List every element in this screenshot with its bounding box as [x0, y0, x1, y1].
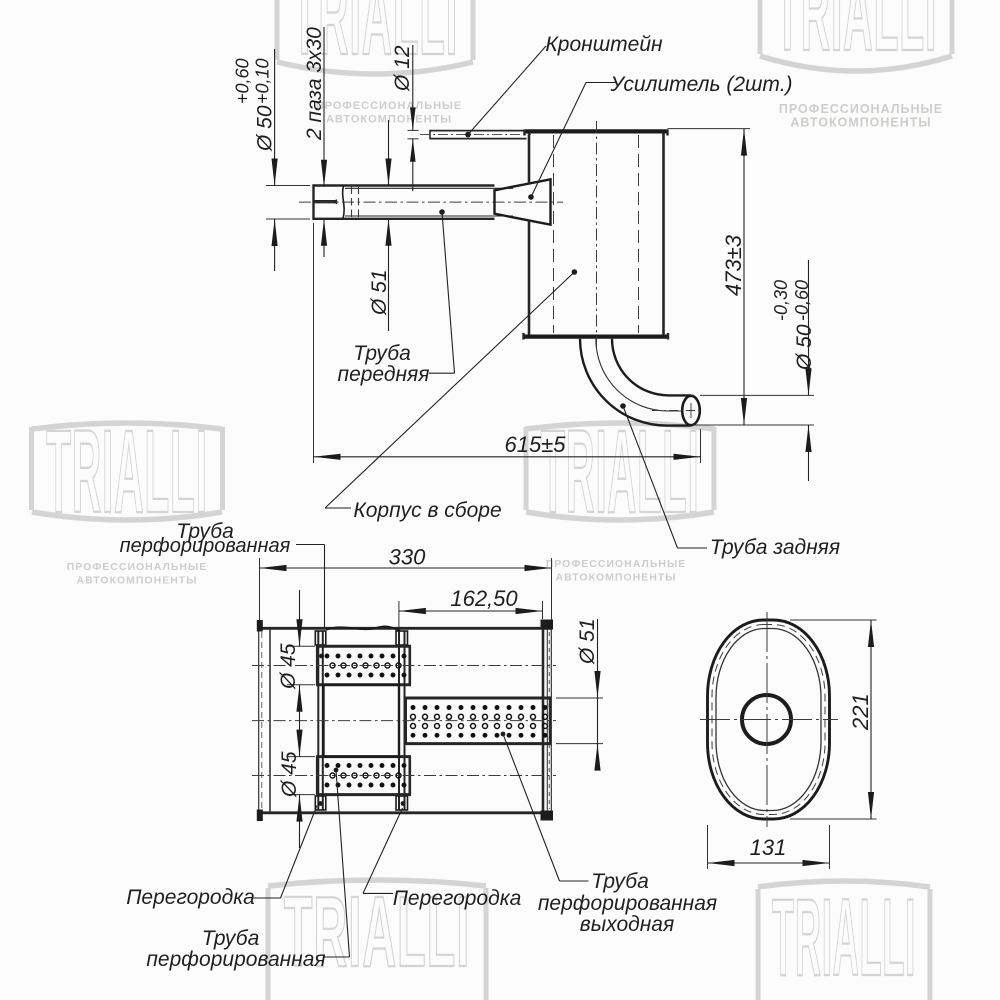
- svg-text:Труба задняя: Труба задняя: [710, 536, 840, 559]
- svg-text:ПРОФЕССИОНАЛЬНЫЕ: ПРОФЕССИОНАЛЬНЫЕ: [779, 102, 943, 116]
- svg-text:+0,60: +0,60: [233, 58, 253, 104]
- svg-text:передняя: передняя: [338, 363, 430, 386]
- svg-text:выходная: выходная: [580, 913, 674, 936]
- svg-text:Перегородка: Перегородка: [126, 886, 255, 909]
- svg-text:615±5: 615±5: [504, 432, 566, 457]
- svg-text:АВТОКОМПОНЕНТЫ: АВТОКОМПОНЕНТЫ: [790, 116, 931, 130]
- svg-text:Труба: Труба: [202, 927, 260, 950]
- svg-text:Ø 45: Ø 45: [278, 751, 301, 798]
- svg-text:162,50: 162,50: [450, 586, 518, 611]
- svg-text:Корпус в сборе: Корпус в сборе: [353, 499, 501, 522]
- svg-text:Ø 45: Ø 45: [277, 643, 300, 690]
- svg-text:Ø 50: Ø 50: [254, 105, 277, 152]
- svg-text:перфорированная: перфорированная: [120, 535, 291, 557]
- svg-text:Кронштейн: Кронштейн: [545, 33, 663, 56]
- svg-text:Труба: Труба: [591, 870, 649, 893]
- svg-text:Ø 51: Ø 51: [576, 618, 599, 665]
- svg-text:перфорированная: перфорированная: [538, 892, 717, 915]
- svg-text:+0,10: +0,10: [253, 58, 273, 104]
- svg-text:АВТОКОМПОНЕНТЫ: АВТОКОМПОНЕНТЫ: [556, 572, 677, 584]
- svg-text:ПРОФЕССИОНАЛЬНЫЕ: ПРОФЕССИОНАЛЬНЫЕ: [546, 558, 687, 570]
- svg-text:-0,60: -0,60: [792, 280, 812, 321]
- svg-text:перфорированная: перфорированная: [146, 948, 325, 971]
- svg-text:Ø 50: Ø 50: [793, 324, 816, 371]
- svg-text:Ø 51: Ø 51: [368, 269, 391, 316]
- svg-text:Ø 12: Ø 12: [391, 45, 414, 92]
- svg-text:ПРОФЕССИОНАЛЬНЫЕ: ПРОФЕССИОНАЛЬНЫЕ: [67, 561, 208, 573]
- svg-text:TRIALLI: TRIALLI: [772, 877, 916, 999]
- svg-text:2 паза 3х30: 2 паза 3х30: [303, 27, 326, 141]
- svg-text:ПРОФЕССИОНАЛЬНЫЕ: ПРОФЕССИОНАЛЬНЫЕ: [316, 100, 462, 112]
- svg-text:-0,30: -0,30: [771, 280, 791, 321]
- svg-text:TRIALLI: TRIALLI: [775, 0, 937, 74]
- svg-text:131: 131: [750, 835, 787, 860]
- svg-text:Труба: Труба: [353, 342, 411, 365]
- svg-text:АВТОКОМПОНЕНТЫ: АВТОКОМПОНЕНТЫ: [77, 575, 198, 587]
- svg-text:221: 221: [848, 693, 873, 731]
- svg-text:473±3: 473±3: [721, 234, 746, 296]
- svg-text:Перегородка: Перегородка: [393, 887, 522, 910]
- svg-text:330: 330: [389, 545, 426, 570]
- svg-text:Усилитель (2шт.): Усилитель (2шт.): [609, 73, 792, 96]
